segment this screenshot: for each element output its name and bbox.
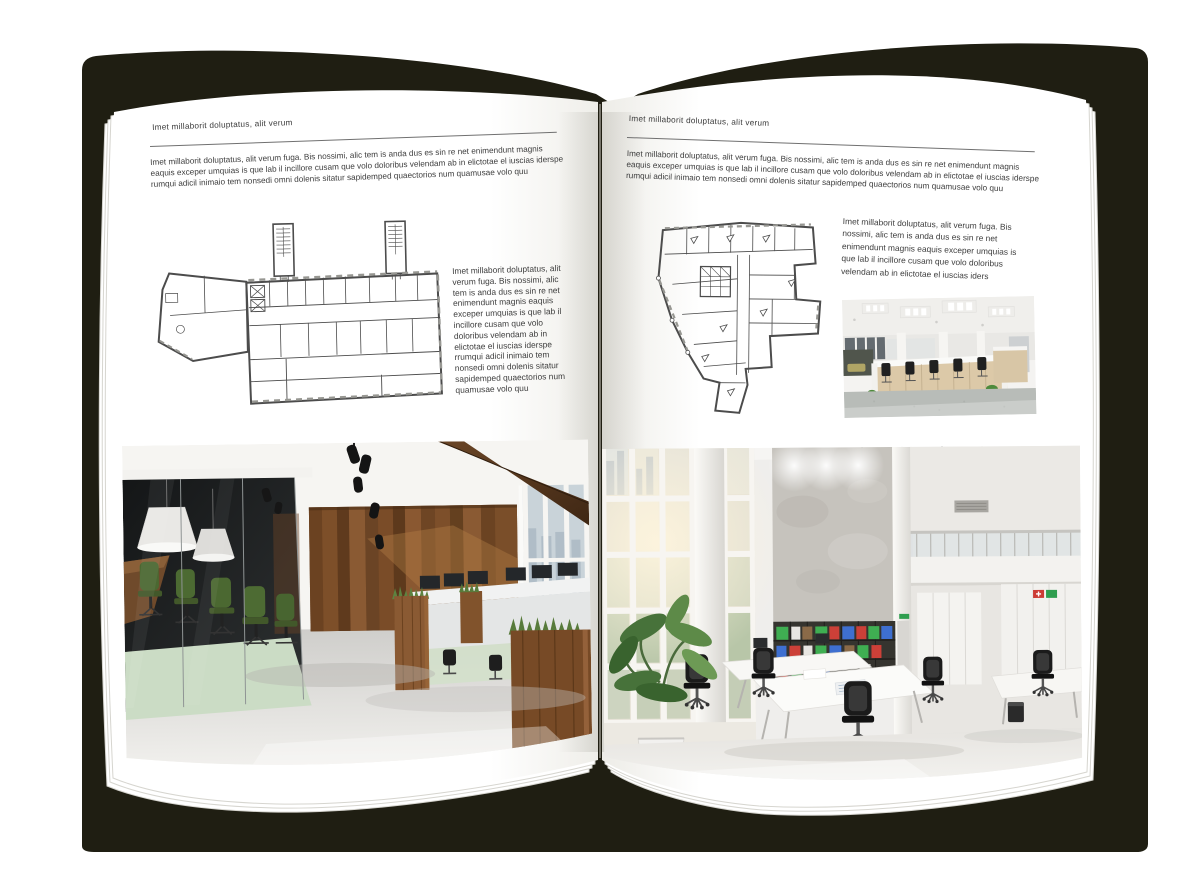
mezzanine-balcony	[910, 440, 1081, 586]
floor-plan-right	[641, 214, 833, 418]
floor-plan-left	[148, 217, 452, 418]
figure-caption: Imet millaborit doluptatus, alit verum f…	[452, 263, 572, 396]
office-photo-small	[842, 296, 1036, 418]
ceiling	[842, 296, 1035, 336]
office-photo-dark	[122, 439, 593, 775]
figure-caption: Imet millaborit doluptatus, alit verum f…	[841, 215, 1033, 284]
magazine-mockup-scene: Imet millaborit doluptatus, alit verum I…	[0, 0, 1200, 891]
concrete-wall	[768, 440, 895, 622]
column	[694, 442, 726, 752]
office-photo-bright	[602, 440, 1082, 789]
